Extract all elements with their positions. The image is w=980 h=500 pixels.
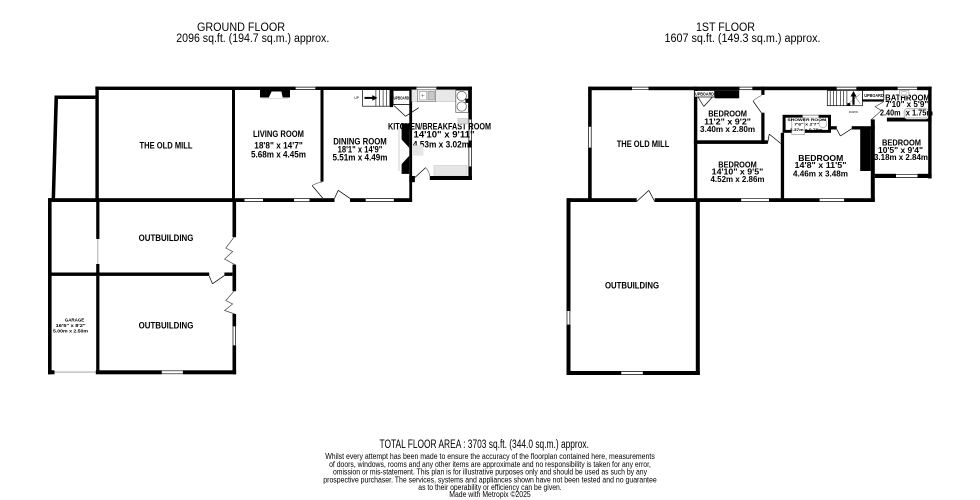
svg-text:4.46m x 3.48m: 4.46m x 3.48m	[793, 169, 848, 178]
svg-text:OUTBUILDING: OUTBUILDING	[605, 281, 659, 292]
svg-text:UPBOARD: UPBOARD	[394, 96, 410, 101]
svg-text:Made with Metropix ©2025: Made with Metropix ©2025	[449, 490, 531, 499]
svg-text:OUTBUILDING: OUTBUILDING	[139, 233, 194, 244]
svg-text:2.37m x 0.79m: 2.37m x 0.79m	[790, 127, 823, 132]
svg-text:2.40m: 2.40m	[880, 108, 901, 117]
svg-text:3.18m x 2.84m: 3.18m x 2.84m	[874, 153, 928, 162]
svg-text:UP: UP	[354, 96, 359, 100]
svg-text:UPBOARD: UPBOARD	[864, 93, 884, 98]
svg-text:5.00m x 2.50m: 5.00m x 2.50m	[53, 329, 88, 334]
svg-text:GARAGE: GARAGE	[65, 317, 85, 322]
svg-text:THE OLD MILL: THE OLD MILL	[617, 139, 670, 150]
svg-text:5.68m x 4.45m: 5.68m x 4.45m	[251, 150, 306, 161]
svg-text:OUTBUILDING: OUTBUILDING	[139, 321, 194, 332]
svg-text:16'5" x 8'2": 16'5" x 8'2"	[56, 323, 86, 328]
svg-text:LIVING ROOM: LIVING ROOM	[253, 129, 304, 140]
svg-text:2096 sq.ft. (194.7 sq.m.) appr: 2096 sq.ft. (194.7 sq.m.) approx.	[176, 33, 329, 45]
svg-text:UPBOARD: UPBOARD	[695, 92, 714, 97]
svg-text:4.52m x 2.86m: 4.52m x 2.86m	[711, 175, 765, 184]
svg-text:THE OLD MILL: THE OLD MILL	[140, 141, 193, 152]
svg-text:1607 sq.ft. (149.3 sq.m.) appr: 1607 sq.ft. (149.3 sq.m.) approx.	[665, 33, 821, 45]
svg-text:5.51m x 4.49m: 5.51m x 4.49m	[333, 152, 388, 163]
svg-text:3.40m x 2.80m: 3.40m x 2.80m	[700, 125, 755, 134]
svg-text:7'6" x 2'7": 7'6" x 2'7"	[794, 122, 819, 127]
svg-text:TOTAL FLOOR AREA : 3703 sq.ft.: TOTAL FLOOR AREA : 3703 sq.ft. (344.0 sq…	[380, 439, 589, 451]
svg-text:DOWN: DOWN	[849, 110, 858, 114]
